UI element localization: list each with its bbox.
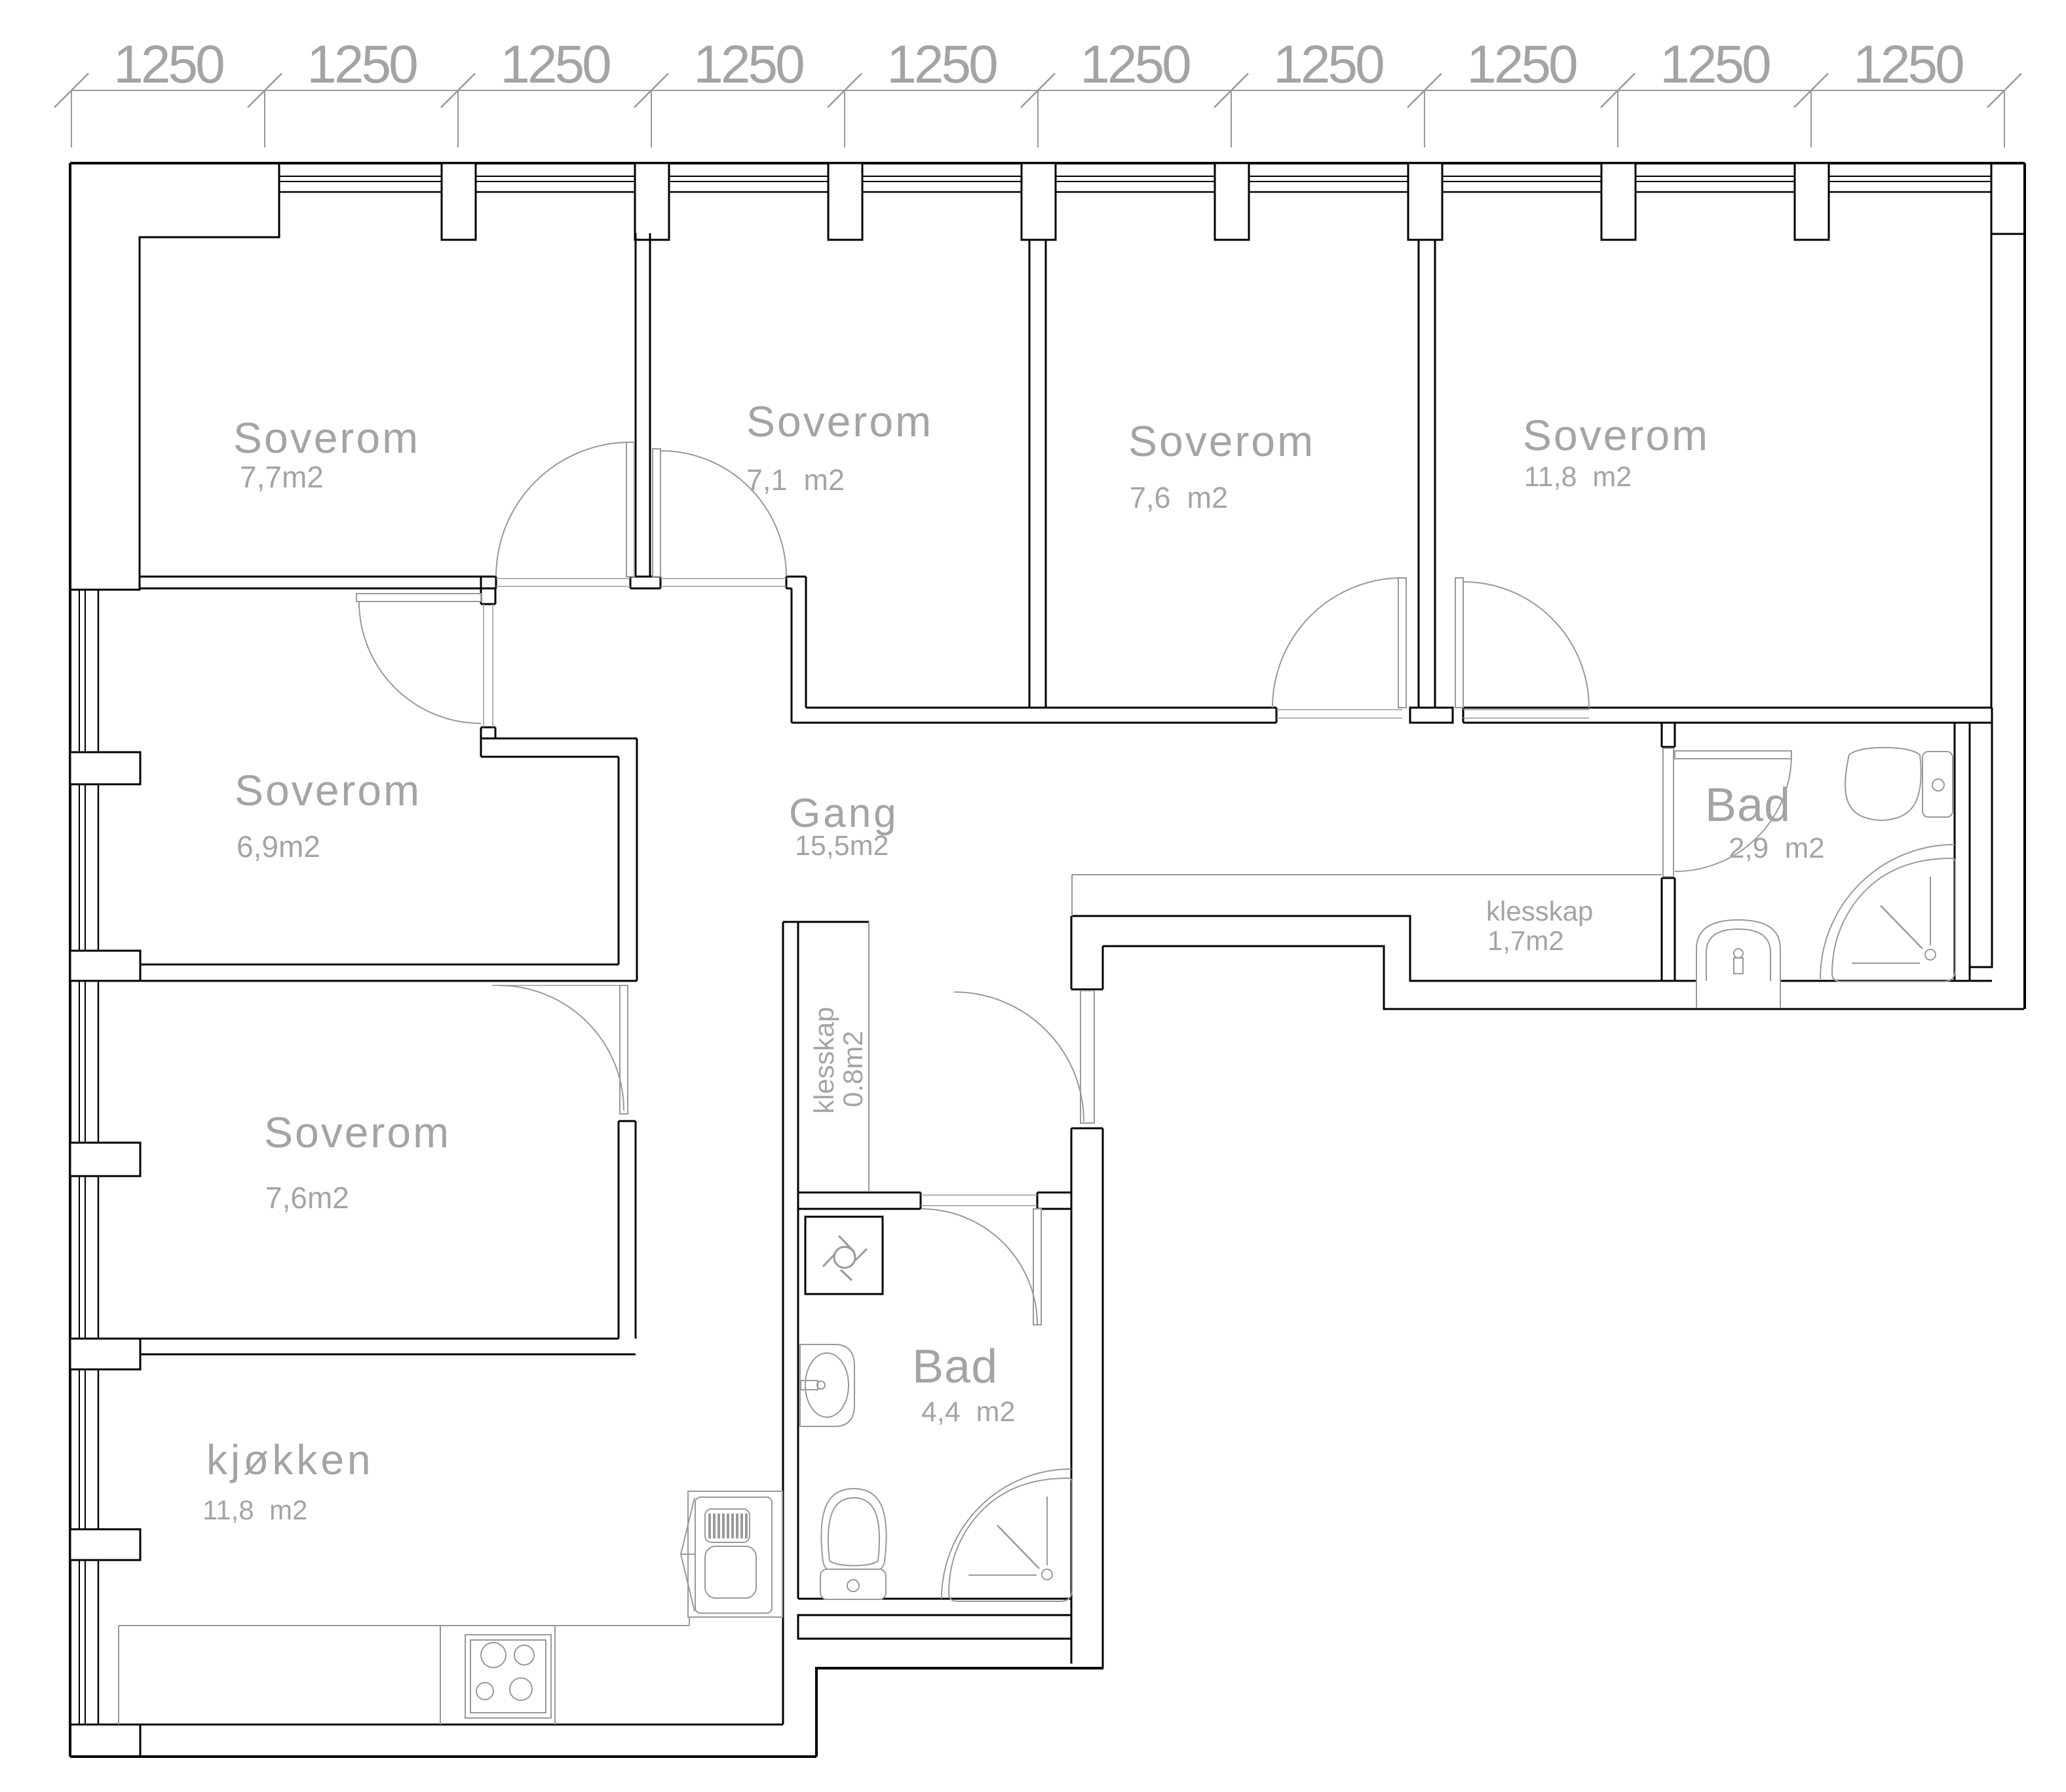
svg-text:7,1 m2: 7,1 m2	[746, 463, 845, 497]
svg-text:Bad: Bad	[1705, 779, 1791, 831]
svg-text:1250: 1250	[693, 35, 803, 94]
svg-text:1,7m2: 1,7m2	[1487, 925, 1564, 956]
svg-text:1250: 1250	[307, 35, 417, 94]
svg-text:Soverom: Soverom	[264, 1108, 451, 1156]
svg-text:1250: 1250	[1853, 35, 1963, 94]
svg-text:kjøkken: kjøkken	[206, 1436, 374, 1483]
svg-text:Soverom: Soverom	[233, 413, 420, 462]
svg-text:klesskap: klesskap	[1486, 896, 1593, 926]
svg-text:11,8 m2: 11,8 m2	[1524, 461, 1632, 493]
svg-text:6,9m2: 6,9m2	[237, 829, 320, 864]
svg-text:Bad: Bad	[912, 1341, 998, 1393]
svg-text:7,7m2: 7,7m2	[240, 460, 324, 494]
svg-text:11,8 m2: 11,8 m2	[202, 1495, 307, 1525]
svg-text:15,5m2: 15,5m2	[795, 830, 889, 862]
svg-text:7,6m2: 7,6m2	[265, 1181, 349, 1215]
svg-text:1250: 1250	[500, 35, 610, 94]
svg-text:1250: 1250	[113, 35, 223, 94]
svg-text:1250: 1250	[1080, 35, 1190, 94]
svg-text:1250: 1250	[1466, 35, 1577, 94]
svg-text:1250: 1250	[1660, 35, 1770, 94]
svg-text:Soverom: Soverom	[1523, 411, 1710, 459]
svg-text:1250: 1250	[1273, 35, 1383, 94]
svg-text:Soverom: Soverom	[1128, 417, 1315, 465]
svg-text:1250: 1250	[887, 35, 997, 94]
svg-text:klesskap: klesskap	[809, 1007, 839, 1114]
svg-text:Gang: Gang	[789, 791, 899, 836]
svg-text:Soverom: Soverom	[235, 766, 421, 814]
svg-text:Soverom: Soverom	[746, 397, 933, 446]
svg-text:7,6 m2: 7,6 m2	[1130, 481, 1228, 514]
svg-text:0.8m2: 0.8m2	[837, 1031, 868, 1107]
svg-text:4,4 m2: 4,4 m2	[921, 1396, 1015, 1428]
svg-text:2,9 m2: 2,9 m2	[1729, 832, 1825, 864]
